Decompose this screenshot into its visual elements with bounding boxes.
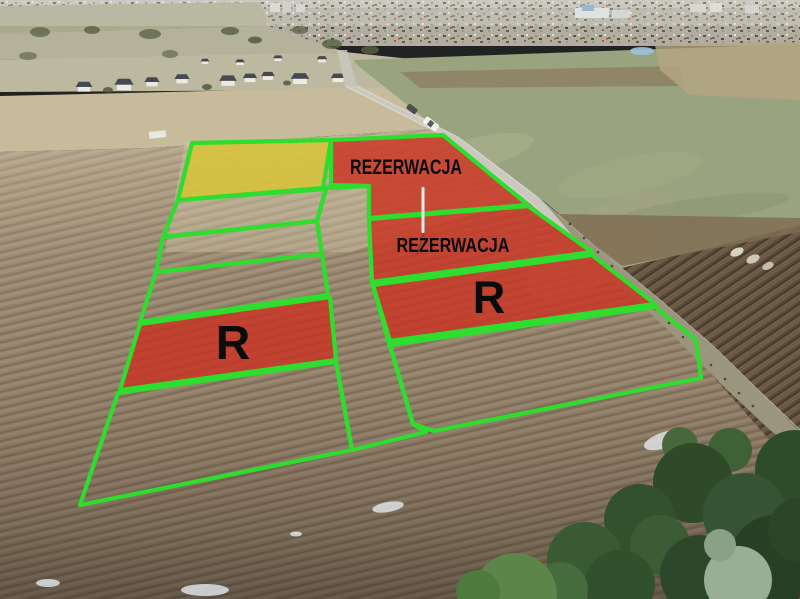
plot-label-rezerwacja-top: REZERWACJA (350, 156, 462, 179)
plot-yellow (178, 140, 331, 200)
tree (30, 27, 50, 37)
plot-label-r-left: R (216, 317, 251, 370)
pond (630, 47, 654, 55)
plot-label-rezerwacja-middle: REZERWACJA (397, 235, 510, 257)
aerial-plot-map: REZERWACJA REZERWACJA R R (0, 0, 800, 599)
plot-label-r-right: R (473, 272, 506, 323)
utility-pole (422, 187, 425, 233)
aerial-photo: REZERWACJA REZERWACJA R R (0, 0, 800, 599)
horizon-haze (0, 0, 800, 26)
